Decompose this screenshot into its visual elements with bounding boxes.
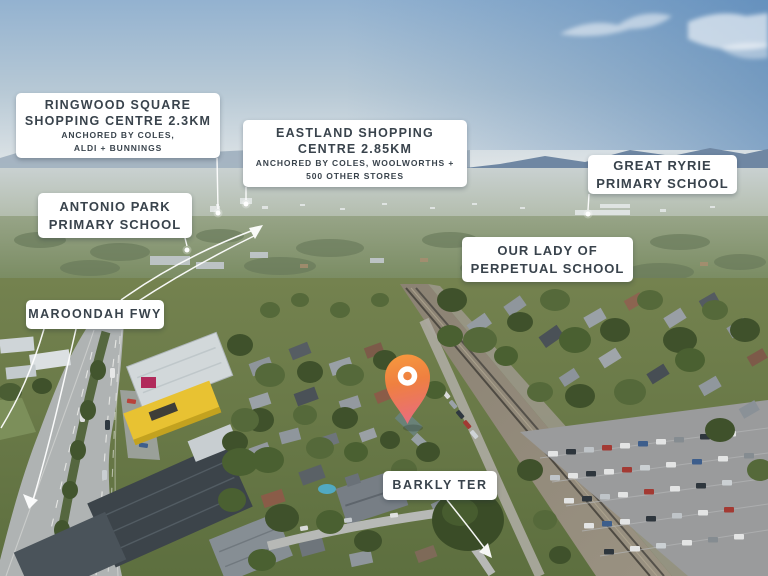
callout-title-line: GREAT RYRIE [613, 157, 711, 175]
callout-title-line: SHOPPING CENTRE 2.3KM [25, 113, 211, 129]
callout-title-line: EASTLAND SHOPPING [276, 125, 434, 141]
callout-subtitle-line: ALDI + BUNNINGS [74, 142, 162, 155]
eastland-target-dot [244, 202, 249, 207]
callout-title-line: BARKLY TER [392, 477, 487, 495]
callout-title-line: PERPETUAL SCHOOL [471, 260, 625, 278]
callout-subtitle-line: ANCHORED BY COLES, [61, 129, 174, 142]
ringwood-target-dot [216, 211, 221, 216]
location-pin-icon [385, 355, 430, 432]
callout-antonio-park-primary-school: ANTONIO PARK PRIMARY SCHOOL [38, 193, 192, 238]
callout-title-line: OUR LADY OF [497, 242, 597, 260]
callout-title-line: ANTONIO PARK [59, 198, 170, 216]
callout-title-line: CENTRE 2.85KM [298, 141, 412, 157]
callout-subtitle-line: ANCHORED BY COLES, WOOLWORTHS + [256, 157, 454, 170]
callout-our-lady-of-perpetual-school: OUR LADY OF PERPETUAL SCHOOL [462, 237, 633, 282]
callout-ringwood-square-shopping-centre: RINGWOOD SQUARE SHOPPING CENTRE 2.3KM AN… [16, 93, 220, 158]
ringwood-leader-line [217, 158, 218, 209]
antonio-park-target-dot [185, 248, 190, 253]
antonio-park-leader-line [185, 238, 187, 246]
callout-title-line: PRIMARY SCHOOL [596, 175, 728, 193]
callout-maroondah-fwy: MAROONDAH FWY [26, 300, 164, 329]
callout-eastland-shopping-centre: EASTLAND SHOPPING CENTRE 2.85KM ANCHORED… [243, 120, 467, 187]
callout-barkly-ter: BARKLY TER [383, 471, 497, 500]
barkly-ter-arrow [447, 500, 492, 558]
great-ryrie-leader-line [588, 194, 589, 210]
callout-title-line: RINGWOOD SQUARE [45, 97, 191, 113]
great-ryrie-target-dot [586, 212, 591, 217]
aerial-suburb-scene: RINGWOOD SQUARE SHOPPING CENTRE 2.3KM AN… [0, 0, 768, 576]
callout-great-ryrie-primary-school: GREAT RYRIE PRIMARY SCHOOL [588, 155, 737, 194]
callout-title-line: MAROONDAH FWY [28, 306, 161, 324]
callout-subtitle-line: 500 OTHER STORES [306, 170, 404, 183]
freeway-arrow-southwest [1, 329, 76, 509]
callout-title-line: PRIMARY SCHOOL [49, 216, 181, 234]
